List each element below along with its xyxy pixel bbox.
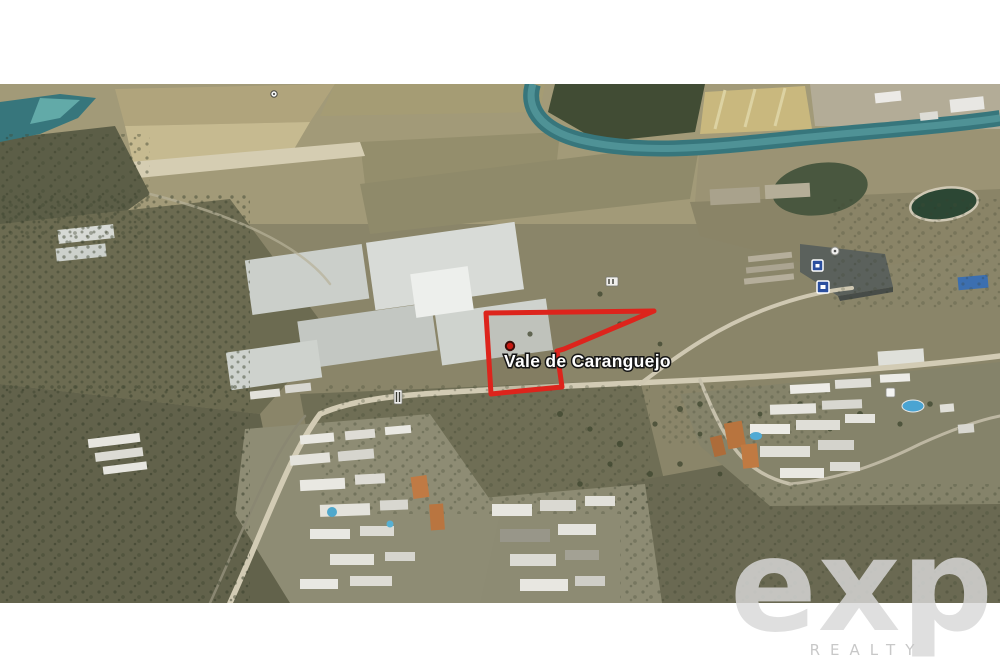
blue-square-poi-icon [812,260,823,271]
place-label: Vale de Caranguejo [504,351,671,371]
place-marker [506,342,514,350]
blue-square-poi-icon [817,281,829,293]
white-dot-poi-icon [831,247,839,255]
road-sign-icon [606,277,618,286]
white-dot-poi-icon [271,91,277,97]
top-white-bar [0,0,1000,84]
bottom-white-bar [0,603,1000,667]
road-sign-icon [394,390,402,404]
aerial-photo-canvas: Vale de Caranguejo [0,84,1000,603]
satellite-map-image: Vale de Caranguejo [0,84,1000,603]
